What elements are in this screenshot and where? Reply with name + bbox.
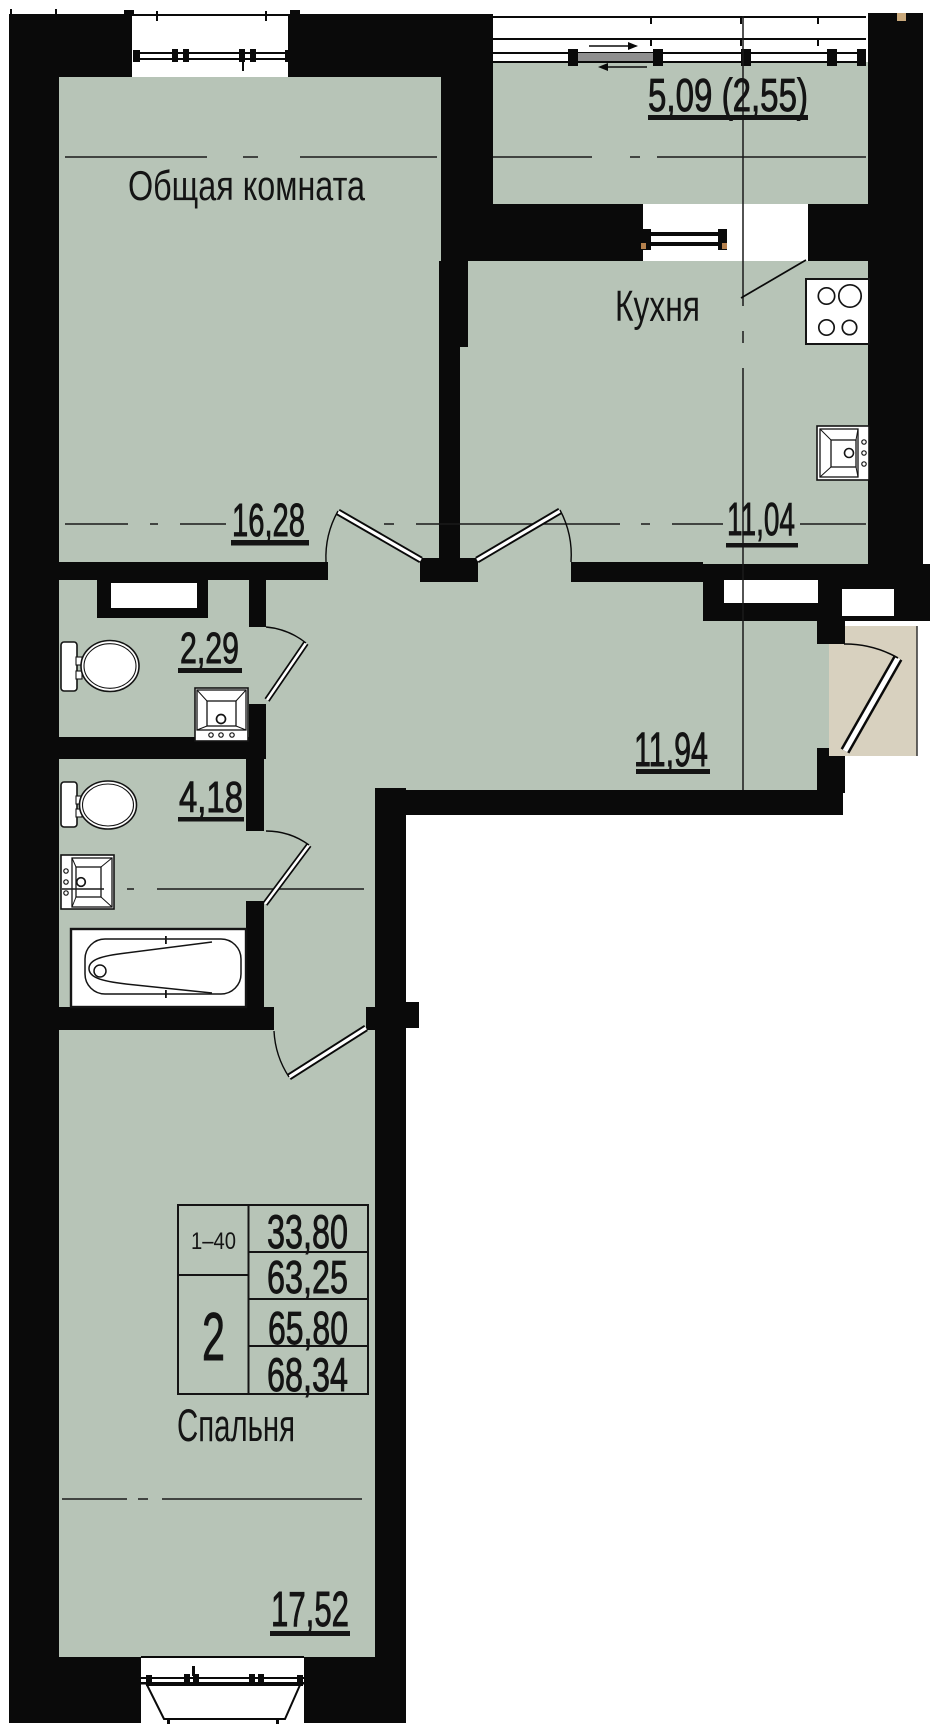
svg-text:2,29: 2,29: [180, 624, 239, 673]
svg-text:4,18: 4,18: [179, 773, 243, 822]
svg-text:65,80: 65,80: [268, 1302, 348, 1354]
svg-text:17,52: 17,52: [271, 1583, 349, 1637]
svg-text:Спальня: Спальня: [177, 1400, 295, 1451]
svg-text:11,04: 11,04: [727, 493, 795, 545]
svg-text:63,25: 63,25: [267, 1251, 348, 1303]
svg-text:16,28: 16,28: [232, 494, 305, 546]
svg-text:Кухня: Кухня: [615, 282, 700, 331]
svg-text:5,09 (2,55): 5,09 (2,55): [648, 69, 808, 121]
svg-text:Общая комната: Общая комната: [128, 162, 365, 209]
svg-text:1–40: 1–40: [191, 1228, 236, 1255]
svg-text:68,34: 68,34: [267, 1348, 348, 1401]
svg-text:2: 2: [202, 1299, 225, 1375]
